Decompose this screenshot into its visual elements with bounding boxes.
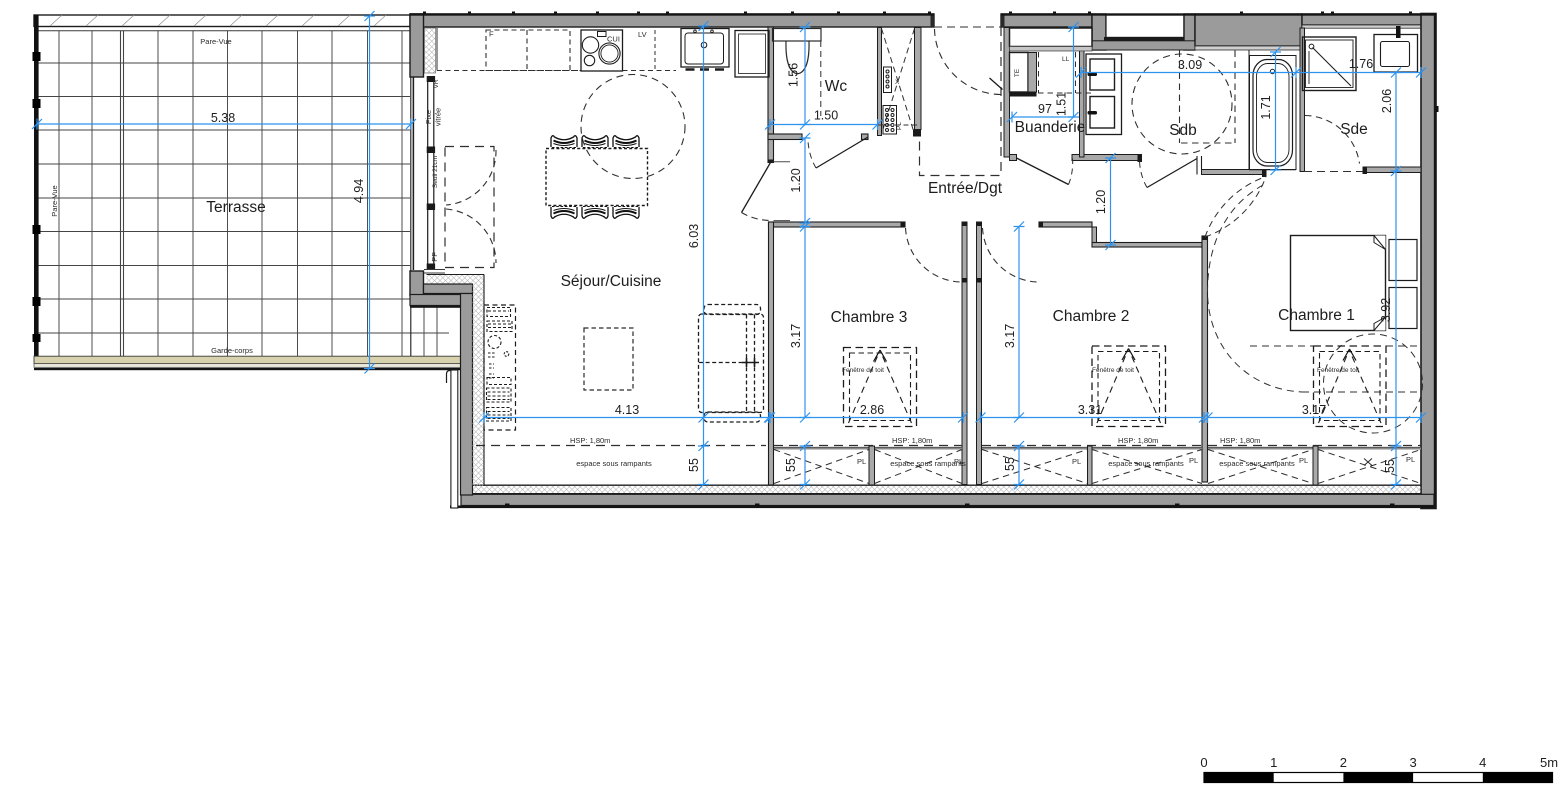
svg-text:55: 55 — [1383, 459, 1397, 473]
svg-text:2.86: 2.86 — [860, 403, 884, 417]
svg-text:HSP: 1,80m: HSP: 1,80m — [892, 436, 932, 445]
svg-text:PL: PL — [1406, 455, 1415, 464]
svg-text:Fixe: Fixe — [424, 110, 433, 124]
svg-text:3.31: 3.31 — [1078, 403, 1102, 417]
svg-text:PL: PL — [1072, 457, 1081, 466]
svg-text:HSP: 1,80m: HSP: 1,80m — [1118, 436, 1158, 445]
svg-text:PL: PL — [857, 457, 866, 466]
svg-text:55: 55 — [1003, 457, 1017, 471]
svg-text:Garde-corps: Garde-corps — [211, 346, 253, 355]
svg-text:F: F — [489, 30, 494, 39]
svg-text:HSP: 1,80m: HSP: 1,80m — [570, 436, 610, 445]
svg-text:4.13: 4.13 — [615, 403, 639, 417]
svg-text:5.38: 5.38 — [211, 111, 235, 125]
svg-text:6.03: 6.03 — [687, 224, 701, 248]
svg-text:1.20: 1.20 — [1094, 190, 1108, 214]
svg-text:3.92: 3.92 — [1379, 298, 1393, 322]
svg-text:CUI: CUI — [607, 35, 620, 44]
svg-text:Terrasse: Terrasse — [206, 199, 265, 216]
svg-text:1.76: 1.76 — [1349, 57, 1373, 71]
svg-text:Fenêtre de toit: Fenêtre de toit — [1092, 367, 1134, 374]
svg-text:Fenêtre de toit: Fenêtre de toit — [842, 367, 884, 374]
svg-text:Sde: Sde — [1340, 121, 1368, 138]
svg-text:1.51: 1.51 — [1055, 92, 1069, 116]
svg-text:Chambre 2: Chambre 2 — [1053, 308, 1130, 325]
svg-text:1.20: 1.20 — [789, 168, 803, 192]
svg-text:5m: 5m — [1540, 755, 1558, 770]
svg-text:Sdb: Sdb — [1169, 122, 1197, 139]
svg-text:Chambre 1: Chambre 1 — [1278, 307, 1355, 324]
svg-text:3: 3 — [1409, 755, 1416, 770]
svg-text:3.09: 3.09 — [1178, 58, 1202, 72]
svg-text:Pare-Vue: Pare-Vue — [50, 185, 59, 216]
svg-text:2.06: 2.06 — [1380, 89, 1394, 113]
svg-text:1.56: 1.56 — [787, 63, 801, 87]
svg-text:Chambre 3: Chambre 3 — [831, 309, 908, 326]
svg-text:X: X — [895, 79, 900, 86]
svg-text:vitrée: vitrée — [434, 108, 443, 126]
svg-text:4.94: 4.94 — [352, 179, 366, 203]
svg-text:Pare-Vue: Pare-Vue — [200, 37, 231, 46]
svg-text:Wc: Wc — [825, 78, 848, 95]
svg-text:0: 0 — [1200, 755, 1207, 770]
svg-text:PF: PF — [430, 252, 439, 262]
svg-text:TE: TE — [1014, 68, 1021, 77]
svg-text:1.50: 1.50 — [814, 109, 838, 123]
svg-text:Fenêtre de toit: Fenêtre de toit — [1317, 367, 1359, 374]
svg-text:3.17: 3.17 — [789, 324, 803, 348]
svg-text:2: 2 — [1340, 755, 1347, 770]
svg-text:espace sous rampants: espace sous rampants — [1219, 459, 1295, 468]
svg-text:1.71: 1.71 — [1259, 95, 1273, 119]
svg-text:HSP: 1,80m: HSP: 1,80m — [1220, 436, 1260, 445]
svg-text:PL: PL — [1189, 456, 1198, 465]
svg-text:Entrée/Dgt: Entrée/Dgt — [928, 180, 1003, 197]
svg-text:4: 4 — [1479, 755, 1486, 770]
svg-text:LL: LL — [1062, 56, 1070, 63]
svg-text:VR: VR — [433, 79, 440, 88]
svg-text:Séjour/Cuisine: Séjour/Cuisine — [561, 273, 662, 290]
svg-text:PL: PL — [896, 122, 903, 130]
svg-text:Seuil 21cm: Seuil 21cm — [432, 156, 439, 188]
svg-text:Buanderie: Buanderie — [1015, 119, 1086, 136]
svg-text:55: 55 — [687, 458, 701, 472]
svg-text:1: 1 — [1270, 755, 1277, 770]
svg-text:97: 97 — [1038, 102, 1052, 116]
svg-text:3.17: 3.17 — [1302, 403, 1326, 417]
svg-text:espace sous rampants: espace sous rampants — [576, 459, 652, 468]
svg-text:55: 55 — [784, 458, 798, 472]
svg-text:LV: LV — [638, 30, 647, 39]
svg-text:PL: PL — [954, 457, 963, 466]
svg-text:PL: PL — [1299, 456, 1308, 465]
svg-text:3.17: 3.17 — [1003, 324, 1017, 348]
